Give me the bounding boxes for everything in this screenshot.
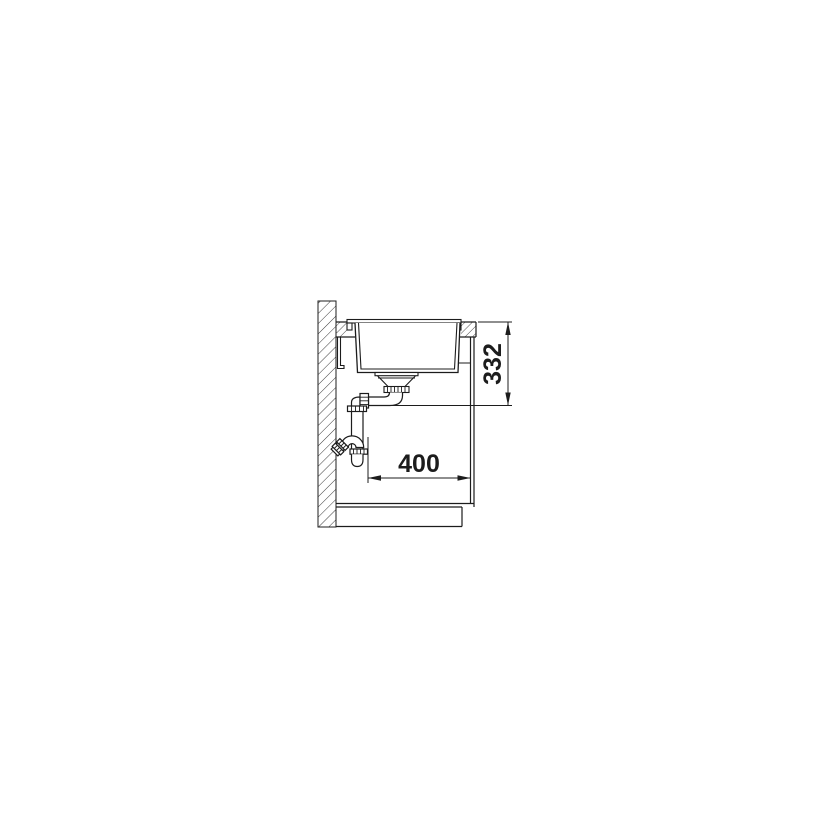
plinth-panel [336, 507, 462, 527]
dim-label-400: 400 [398, 450, 440, 478]
countertop-hatch-right [461, 322, 476, 337]
drawing-canvas: 332 400 [0, 0, 830, 830]
wall-support-rail [338, 337, 345, 369]
strainer-nut [384, 387, 409, 393]
arrow-up-icon [505, 322, 510, 335]
arrow-left-icon [368, 475, 381, 480]
sink-basin [355, 323, 460, 373]
drain-elbow-pipe [369, 393, 403, 406]
dimension-400: 400 [368, 437, 471, 483]
cabinet-side-panel [471, 337, 475, 507]
wall-hatch [318, 301, 336, 527]
union-nut-vertical-upper [348, 406, 367, 412]
strainer-flange [375, 373, 418, 376]
sink-rim-profile [347, 320, 461, 324]
strainer-bowl [378, 376, 416, 387]
trap-bottom-cap [352, 454, 364, 466]
arrow-right-icon [458, 475, 471, 480]
cabinet-bottom [336, 504, 474, 508]
wall-section [318, 301, 336, 527]
basin-outer-wall [355, 323, 460, 373]
drain-trap [331, 393, 402, 467]
sink-rim-lip-left [347, 323, 352, 330]
union-nut-vertical-lower [350, 449, 368, 454]
arrow-down-icon [505, 393, 510, 406]
countertop-hatch-left [336, 322, 347, 337]
sink-section-drawing: 332 400 [0, 0, 830, 830]
dim-label-332: 332 [479, 343, 507, 385]
